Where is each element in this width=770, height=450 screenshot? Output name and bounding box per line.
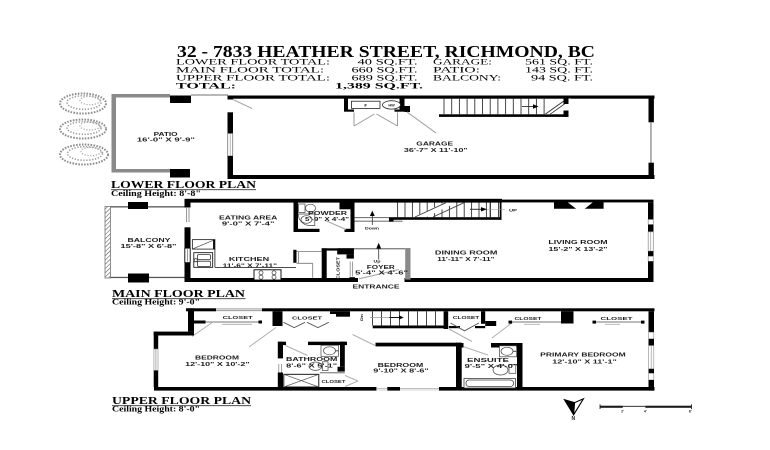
svg-text:CLOSET: CLOSET xyxy=(322,379,346,384)
svg-text:BEDROOM: BEDROOM xyxy=(195,355,240,361)
svg-text:ENSUITE: ENSUITE xyxy=(467,358,509,364)
svg-text:PRIMARY BEDROOM: PRIMARY BEDROOM xyxy=(540,353,626,359)
svg-text:TOTAL:: TOTAL: xyxy=(176,81,236,91)
svg-text:11'-6" X 7'-11": 11'-6" X 7'-11" xyxy=(223,264,278,270)
svg-text:HW: HW xyxy=(388,104,395,108)
svg-text:Down: Down xyxy=(365,226,379,230)
svg-text:1,389 SQ.FT.: 1,389 SQ.FT. xyxy=(335,81,423,91)
svg-text:DINING ROOM: DINING ROOM xyxy=(435,250,498,256)
svg-text:15'-8" X 6'-8": 15'-8" X 6'-8" xyxy=(121,244,178,250)
svg-text:5'-9" X 4'-4": 5'-9" X 4'-4" xyxy=(305,217,350,223)
svg-text:2': 2' xyxy=(621,409,624,413)
svg-text:15'-2" X 13'-2": 15'-2" X 13'-2" xyxy=(549,247,609,253)
svg-text:ENTRANCE: ENTRANCE xyxy=(353,285,401,291)
svg-text:F: F xyxy=(364,103,367,108)
svg-text:CLOSET: CLOSET xyxy=(601,316,634,321)
svg-text:UP: UP xyxy=(509,208,518,212)
svg-text:12'-10" X 11'-1": 12'-10" X 11'-1" xyxy=(552,359,617,365)
svg-text:Dn: Dn xyxy=(360,314,364,321)
svg-text:16'-0" X 9'-9": 16'-0" X 9'-9" xyxy=(137,138,196,144)
svg-text:CLOSET: CLOSET xyxy=(453,315,480,320)
svg-text:Ceiling Height: 9'-0": Ceiling Height: 9'-0" xyxy=(112,297,200,307)
svg-text:9'-5" X 4'-0": 9'-5" X 4'-0" xyxy=(465,364,519,370)
svg-text:BALCONY: BALCONY xyxy=(128,238,171,244)
svg-text:4': 4' xyxy=(644,409,647,413)
svg-text:8': 8' xyxy=(689,409,692,413)
svg-text:LIVING ROOM: LIVING ROOM xyxy=(548,240,608,246)
svg-text:BATHROOM: BATHROOM xyxy=(286,357,338,363)
svg-text:CLOSET: CLOSET xyxy=(292,316,323,321)
svg-text:CLOSET: CLOSET xyxy=(336,257,341,279)
svg-text:GARAGE: GARAGE xyxy=(416,141,453,147)
svg-text:9'-10" X 8'-6": 9'-10" X 8'-6" xyxy=(373,369,429,375)
svg-text:BALCONY:: BALCONY: xyxy=(433,73,501,83)
svg-text:CLOSET: CLOSET xyxy=(515,316,542,321)
svg-text:Ceiling Height: 8'-8": Ceiling Height: 8'-8" xyxy=(111,188,201,198)
svg-text:12'-10" X 10'-2": 12'-10" X 10'-2" xyxy=(185,362,250,368)
svg-text:9'-0" X 7'-4": 9'-0" X 7'-4" xyxy=(222,221,275,227)
svg-text:5'-4" X 4'-6": 5'-4" X 4'-6" xyxy=(355,271,409,277)
svg-text:Up: Up xyxy=(374,260,381,264)
svg-text:8'-6" X 5'-1": 8'-6" X 5'-1" xyxy=(286,363,338,369)
svg-text:94 SQ. FT.: 94 SQ. FT. xyxy=(531,73,593,83)
svg-text:CLOSET: CLOSET xyxy=(223,315,254,320)
svg-text:KITCHEN: KITCHEN xyxy=(229,257,269,263)
svg-text:36'-7" X 11'-10": 36'-7" X 11'-10" xyxy=(404,148,468,154)
svg-text:N: N xyxy=(571,416,575,422)
svg-text:11'-11" X 7'-11": 11'-11" X 7'-11" xyxy=(437,257,495,263)
svg-text:Ceiling Height: 8'-0": Ceiling Height: 8'-0" xyxy=(112,403,200,413)
